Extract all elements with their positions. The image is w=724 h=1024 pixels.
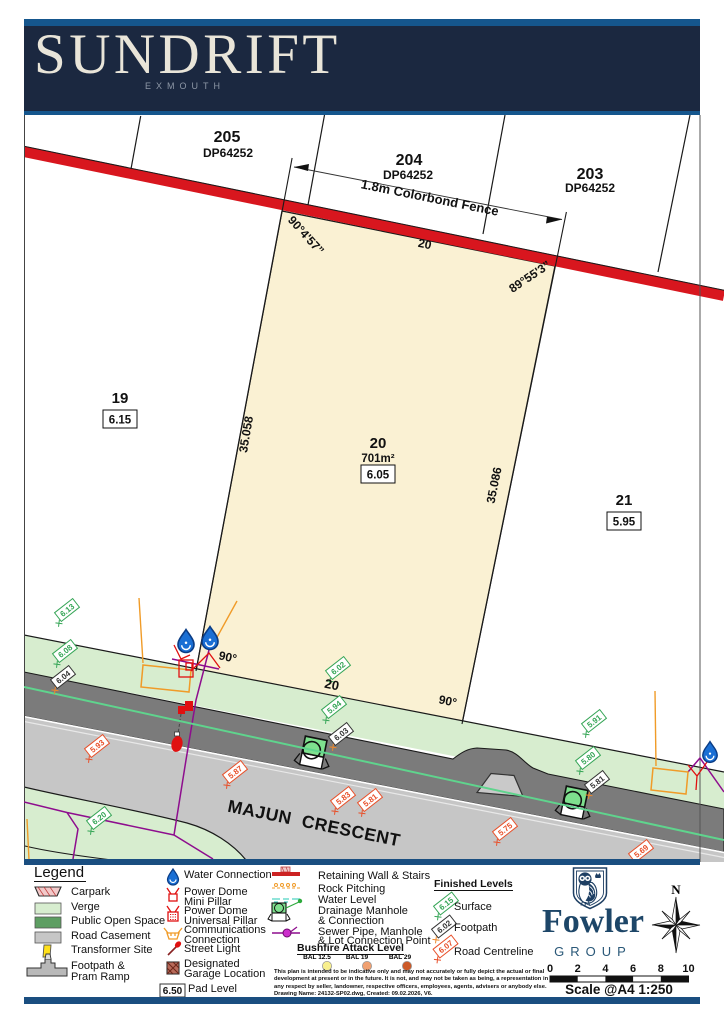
svg-text:6.50: 6.50 (163, 986, 183, 997)
svg-text:1.8m Colorbond Fence: 1.8m Colorbond Fence (360, 176, 500, 218)
svg-text:BAL 12.5: BAL 12.5 (303, 954, 331, 961)
svg-text:2: 2 (575, 963, 581, 975)
svg-text:N: N (671, 882, 681, 897)
svg-text:19: 19 (112, 390, 129, 407)
svg-text:4: 4 (602, 963, 609, 975)
svg-text:6.15: 6.15 (109, 415, 132, 427)
svg-text:BAL 29: BAL 29 (389, 954, 412, 961)
svg-text:6: 6 (630, 963, 636, 975)
svg-text:DP64252: DP64252 (565, 181, 615, 195)
svg-text:8: 8 (658, 963, 664, 975)
svg-text:DP64252: DP64252 (383, 168, 433, 182)
svg-text:DP64252: DP64252 (203, 146, 253, 160)
svg-text:BAL 19: BAL 19 (346, 954, 369, 961)
svg-text:Scale @A4 1:250: Scale @A4 1:250 (565, 982, 673, 997)
svg-text:6.05: 6.05 (367, 470, 390, 482)
svg-text:10: 10 (682, 963, 694, 975)
svg-text:204: 204 (396, 152, 423, 169)
svg-text:21: 21 (616, 492, 633, 509)
svg-text:5.95: 5.95 (613, 517, 636, 529)
svg-text:20: 20 (370, 435, 387, 452)
svg-text:20: 20 (323, 676, 340, 694)
svg-text:205: 205 (214, 129, 241, 146)
svg-text:701m²: 701m² (361, 453, 394, 465)
svg-text:0: 0 (547, 963, 553, 975)
